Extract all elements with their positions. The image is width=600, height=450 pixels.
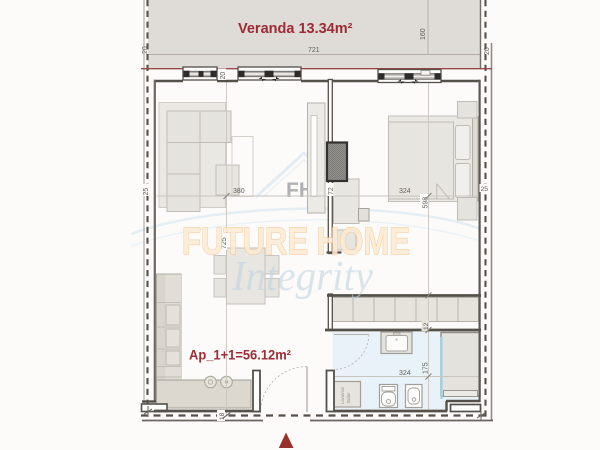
svg-text:20: 20	[220, 72, 227, 80]
svg-text:Lavatrice: Lavatrice	[340, 386, 345, 404]
svg-text:Boiler: Boiler	[346, 392, 351, 403]
svg-text:175: 175	[423, 362, 430, 374]
svg-text:25: 25	[481, 186, 489, 193]
svg-text:380: 380	[233, 188, 245, 195]
svg-text:72: 72	[328, 187, 335, 195]
svg-text:324: 324	[399, 188, 411, 195]
svg-text:324: 324	[399, 370, 411, 377]
svg-text:721: 721	[308, 47, 320, 54]
svg-text:20: 20	[484, 47, 491, 55]
svg-text:160: 160	[420, 28, 427, 40]
svg-text:Ap_1+1=56.12m²: Ap_1+1=56.12m²	[189, 347, 291, 363]
svg-text:Integrity: Integrity	[231, 254, 373, 300]
svg-text:Veranda 13.34m²: Veranda 13.34m²	[238, 21, 353, 37]
svg-text:25: 25	[143, 188, 150, 196]
svg-text:20: 20	[142, 46, 149, 54]
